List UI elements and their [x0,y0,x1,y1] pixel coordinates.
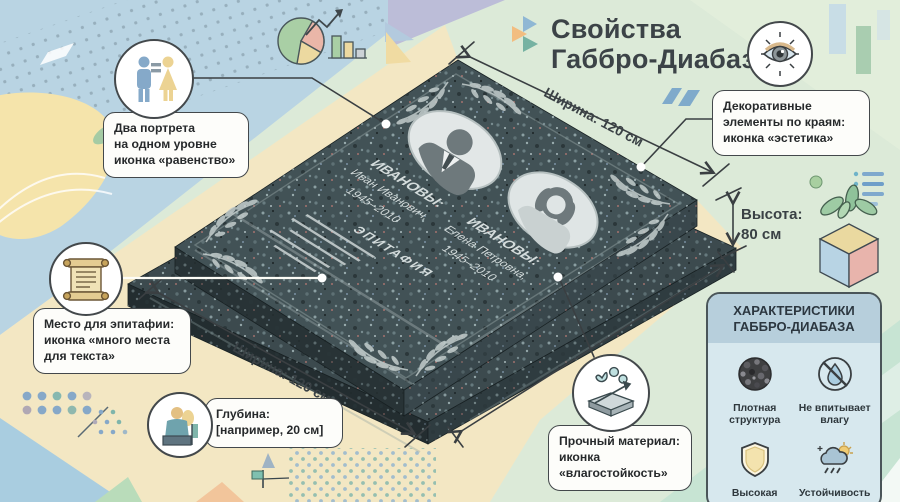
panel-body: Плотная структура Не впитывает влагу Выс… [708,343,880,502]
panel-item-weather: Устойчивость к погодным условиям [797,438,872,502]
panel-item-label: Устойчивость к погодным условиям [797,488,872,502]
shield-icon [734,438,776,480]
leader-dot [318,274,327,283]
height-label: Высота: 80 см [741,205,802,244]
panel-item-strength: Высокая прочность и долговечность [716,438,793,502]
eye-icon [747,21,813,87]
leader-dot [554,273,563,282]
panel-title: ХАРАКТЕРИСТИКИ ГАББРО-ДИАБАЗА [708,294,880,343]
weather-icon [814,438,856,480]
tick [405,425,430,447]
equality-icon [114,39,194,119]
leader-material [560,280,594,357]
leader-dot [637,163,646,172]
characteristics-panel: ХАРАКТЕРИСТИКИ ГАББРО-ДИАБАЗА Плотная ст… [706,292,882,502]
tick [139,277,164,299]
callout-material: Прочный материал: иконка «влагостойкость… [548,425,692,491]
panel-item-label: Не впитывает влагу [797,403,872,428]
panel-item-moisture: Не впитывает влагу [797,353,872,428]
panel-item-label: Плотная структура [716,403,793,428]
tick [703,164,729,186]
panel-item-label: Высокая прочность и долговечность [716,488,793,502]
moisture-resistance-icon [572,354,650,432]
callout-depth: Глубина: [например, 20 см] [205,398,343,448]
no-moisture-icon [814,353,856,395]
callout-portraits: Два портрета на одном уровне иконка «рав… [103,112,249,178]
tick [448,427,463,447]
callout-epitaph: Место для эпитафии: иконка «много места … [33,308,191,374]
panel-item-structure: Плотная структура [716,353,793,428]
person-podium-icon [147,392,213,458]
tick [449,42,474,64]
scroll-icon [49,242,123,316]
tick [716,188,741,200]
leader-dot [382,120,391,129]
stone-texture-icon [734,353,776,395]
infographic-canvas: ×× ×× [0,0,900,502]
tick [721,246,746,258]
page-title: Свойства Габбро-Диабаз [551,14,755,74]
callout-decor: Декоративные элементы по краям: иконка «… [712,90,870,156]
